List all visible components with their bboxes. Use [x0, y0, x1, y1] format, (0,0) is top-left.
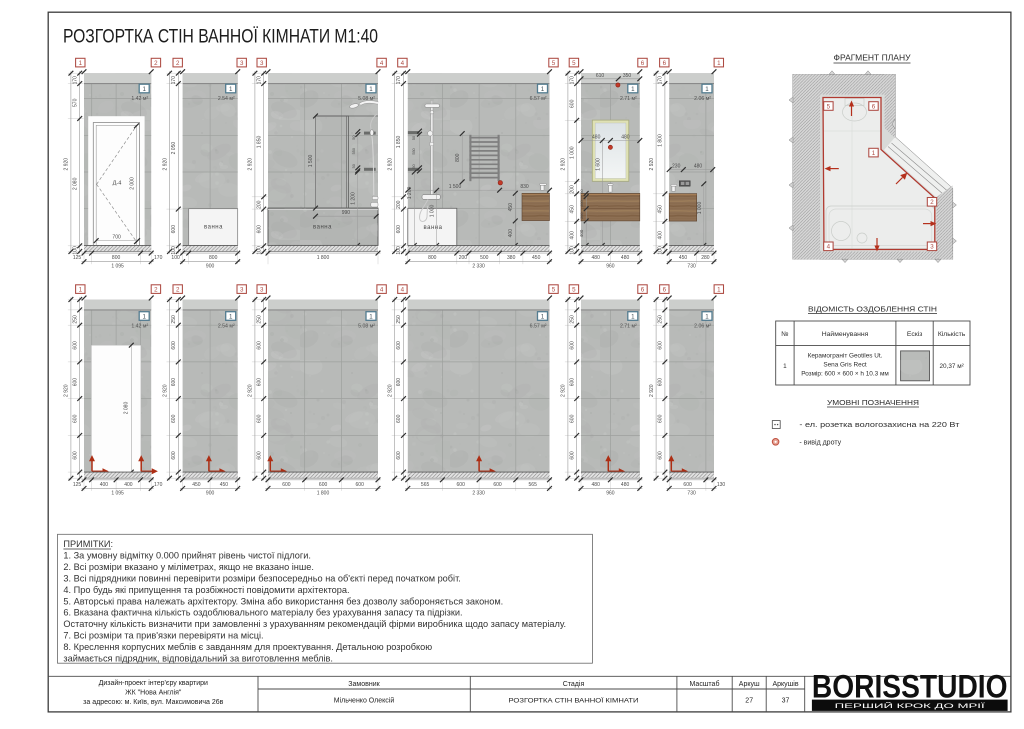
- svg-text:1 000: 1 000: [697, 202, 703, 215]
- svg-text:600: 600: [256, 451, 262, 460]
- svg-text:6.57 м²: 6.57 м²: [530, 96, 547, 102]
- svg-text:2 330: 2 330: [472, 490, 485, 496]
- svg-text:1 500: 1 500: [308, 155, 314, 168]
- svg-text:200: 200: [256, 200, 262, 209]
- svg-text:27: 27: [745, 697, 753, 704]
- svg-text:2 920: 2 920: [388, 384, 394, 397]
- svg-text:450: 450: [192, 482, 201, 488]
- svg-text:2 050: 2 050: [171, 142, 177, 155]
- svg-text:3: 3: [930, 244, 934, 251]
- svg-text:4: 4: [827, 244, 831, 251]
- svg-text:2 330: 2 330: [472, 264, 485, 270]
- svg-text:600: 600: [72, 378, 78, 387]
- svg-text:170: 170: [72, 76, 78, 85]
- svg-text:600: 600: [171, 225, 177, 234]
- svg-text:ВІДОМІСТЬ ОЗДОБЛЕННЯ СТІН: ВІДОМІСТЬ ОЗДОБЛЕННЯ СТІН: [808, 305, 937, 314]
- svg-text:1: 1: [79, 286, 83, 293]
- svg-text:570: 570: [72, 98, 78, 107]
- svg-text:7. Всі розміри та прив'язки пе: 7. Всі розміри та прив'язки перевіряти н…: [63, 631, 263, 641]
- svg-text:1.42 м²: 1.42 м²: [131, 96, 148, 102]
- svg-text:Кількість: Кількість: [938, 330, 966, 338]
- svg-text:800: 800: [428, 255, 437, 261]
- svg-text:4: 4: [380, 286, 384, 293]
- svg-text:480: 480: [621, 255, 630, 261]
- svg-text:ванна: ванна: [204, 225, 223, 231]
- svg-text:450: 450: [508, 203, 514, 212]
- svg-text:6.57 м²: 6.57 м²: [530, 323, 547, 329]
- svg-text:Розмір: 600 × 600 × h 10.3 мм: Розмір: 600 × 600 × h 10.3 мм: [801, 370, 889, 378]
- svg-text:5: 5: [572, 60, 576, 67]
- svg-text:400: 400: [508, 229, 514, 238]
- svg-text:550: 550: [352, 148, 356, 154]
- svg-text:2 920: 2 920: [649, 384, 655, 397]
- svg-text:за адресою: м. Київ, вул. Макс: за адресою: м. Київ, вул. Максимовича 26…: [83, 699, 224, 706]
- svg-text:1 095: 1 095: [111, 490, 124, 496]
- svg-text:1: 1: [369, 86, 373, 93]
- svg-text:Дизайн-проект інтер'єру кварти: Дизайн-проект інтер'єру квартири: [99, 679, 208, 687]
- svg-text:4: 4: [401, 286, 405, 293]
- svg-text:960: 960: [606, 264, 615, 270]
- svg-text:2 080: 2 080: [124, 402, 130, 415]
- svg-text:2.06 м²: 2.06 м²: [694, 96, 711, 102]
- svg-text:2 920: 2 920: [248, 158, 254, 171]
- svg-text:250: 250: [256, 315, 262, 324]
- svg-text:500: 500: [480, 255, 489, 261]
- svg-text:50: 50: [580, 189, 584, 193]
- svg-text:1 000: 1 000: [430, 205, 436, 218]
- svg-text:2 920: 2 920: [64, 384, 70, 397]
- svg-text:600: 600: [256, 414, 262, 423]
- svg-text:2 920: 2 920: [388, 158, 394, 171]
- svg-text:2 920: 2 920: [561, 158, 567, 171]
- svg-text:600: 600: [569, 378, 575, 387]
- svg-text:600: 600: [72, 341, 78, 350]
- svg-text:1: 1: [79, 60, 83, 67]
- svg-text:480: 480: [592, 482, 601, 488]
- svg-text:8. Креслення корпусних меблів: 8. Креслення корпусних меблів є завдання…: [63, 642, 432, 652]
- svg-text:50: 50: [412, 164, 416, 168]
- svg-text:600: 600: [256, 341, 262, 350]
- svg-text:4. Про будь які припущення та: 4. Про будь які припущення та розбіжност…: [63, 585, 349, 595]
- svg-text:РОЗГОРТКА СТІН ВАННОЇ КІМНАТИ: РОЗГОРТКА СТІН ВАННОЇ КІМНАТИ: [509, 696, 639, 704]
- svg-text:ПЕРШИЙ КРОК ДО МРІЇ: ПЕРШИЙ КРОК ДО МРІЇ: [835, 702, 986, 710]
- svg-text:1: 1: [717, 60, 721, 67]
- svg-text:2: 2: [176, 60, 180, 67]
- svg-text:20,37 м²: 20,37 м²: [939, 363, 963, 370]
- svg-text:480: 480: [621, 482, 630, 488]
- svg-text:Аркушів: Аркушів: [772, 680, 798, 688]
- svg-text:5.08 м²: 5.08 м²: [358, 323, 375, 329]
- svg-text:2 920: 2 920: [561, 384, 567, 397]
- svg-text:ПРИМІТКИ:: ПРИМІТКИ:: [63, 539, 113, 549]
- svg-text:1: 1: [705, 86, 709, 93]
- svg-text:займається підрядник, відповід: займається підрядник, відповідальний за …: [63, 654, 333, 664]
- svg-text:400: 400: [124, 482, 133, 488]
- svg-text:1 800: 1 800: [317, 255, 330, 261]
- svg-text:1.42 м²: 1.42 м²: [131, 323, 148, 329]
- svg-text:1. За умовну відмітку 0.000 пр: 1. За умовну відмітку 0.000 прийнят ріве…: [63, 551, 311, 561]
- svg-text:600: 600: [569, 341, 575, 350]
- svg-text:550: 550: [412, 148, 416, 154]
- svg-text:900: 900: [206, 490, 215, 496]
- svg-text:2 920: 2 920: [162, 158, 168, 171]
- svg-text:Ескіз: Ескіз: [907, 330, 922, 338]
- svg-text:600: 600: [396, 414, 402, 423]
- svg-text:1 000: 1 000: [569, 146, 575, 159]
- svg-text:565: 565: [529, 482, 538, 488]
- svg-text:Керамограніт Geotiles Ut.: Керамограніт Geotiles Ut.: [808, 352, 883, 360]
- svg-text:РОЗГОРТКА СТІН ВАННОЇ КІМНАТИ: РОЗГОРТКА СТІН ВАННОЇ КІМНАТИ М1:40: [63, 27, 378, 48]
- svg-text:600: 600: [658, 341, 664, 350]
- svg-text:50: 50: [352, 135, 356, 139]
- svg-text:100: 100: [171, 246, 177, 255]
- svg-text:Аркуш: Аркуш: [739, 681, 760, 688]
- svg-text:600: 600: [569, 451, 575, 460]
- svg-text:100: 100: [658, 246, 664, 255]
- svg-text:600: 600: [683, 482, 692, 488]
- svg-text:6: 6: [641, 60, 645, 67]
- svg-text:480: 480: [694, 163, 703, 169]
- svg-text:1: 1: [717, 286, 721, 293]
- svg-text:600: 600: [72, 414, 78, 423]
- svg-text:450: 450: [569, 205, 575, 214]
- svg-text:2: 2: [930, 199, 934, 206]
- svg-text:2 920: 2 920: [649, 158, 655, 171]
- svg-text:1: 1: [631, 313, 635, 320]
- svg-text:50: 50: [412, 136, 416, 140]
- svg-text:1: 1: [783, 363, 787, 370]
- svg-text:600: 600: [396, 378, 402, 387]
- svg-text:600: 600: [396, 341, 402, 350]
- svg-text:Замовник: Замовник: [348, 681, 380, 688]
- svg-text:450: 450: [220, 482, 229, 488]
- svg-text:100: 100: [171, 255, 180, 261]
- svg-text:600: 600: [569, 99, 575, 108]
- svg-text:170: 170: [658, 76, 664, 85]
- svg-text:830: 830: [520, 184, 529, 190]
- svg-text:600: 600: [256, 225, 262, 234]
- svg-text:100: 100: [256, 246, 262, 255]
- svg-text:200: 200: [580, 213, 584, 219]
- svg-text:600: 600: [396, 225, 402, 234]
- svg-text:600: 600: [72, 451, 78, 460]
- svg-text:Масштаб: Масштаб: [690, 680, 720, 688]
- svg-text:600: 600: [356, 482, 365, 488]
- svg-text:200: 200: [396, 200, 402, 209]
- svg-text:600: 600: [569, 414, 575, 423]
- svg-text:Sena Gris Rect: Sena Gris Rect: [823, 362, 867, 369]
- svg-text:1: 1: [229, 313, 233, 320]
- svg-text:1: 1: [229, 86, 233, 93]
- svg-text:250: 250: [658, 315, 664, 324]
- svg-text:400: 400: [658, 231, 664, 240]
- svg-text:Д-4: Д-4: [113, 181, 122, 187]
- svg-text:400: 400: [569, 231, 575, 240]
- svg-text:600: 600: [256, 378, 262, 387]
- svg-text:2 920: 2 920: [248, 384, 254, 397]
- svg-text:ванна: ванна: [424, 225, 443, 231]
- svg-text:600: 600: [396, 451, 402, 460]
- svg-text:50: 50: [352, 164, 356, 168]
- svg-text:1 800: 1 800: [317, 490, 330, 496]
- svg-text:2.54 м²: 2.54 м²: [218, 323, 235, 329]
- svg-text:170: 170: [396, 76, 402, 85]
- svg-text:200: 200: [459, 255, 468, 261]
- svg-text:990: 990: [342, 210, 351, 216]
- svg-text:2: 2: [176, 286, 180, 293]
- svg-text:5.08 м²: 5.08 м²: [358, 96, 375, 102]
- svg-text:1: 1: [541, 313, 545, 320]
- svg-text:130: 130: [717, 482, 726, 488]
- svg-text:3: 3: [240, 60, 244, 67]
- svg-text:600: 600: [658, 451, 664, 460]
- svg-text:УМОВНІ ПОЗНАЧЕННЯ: УМОВНІ ПОЗНАЧЕННЯ: [827, 398, 919, 407]
- svg-text:6: 6: [641, 286, 645, 293]
- svg-text:1: 1: [631, 86, 635, 93]
- svg-text:600: 600: [171, 341, 177, 350]
- svg-text:280: 280: [701, 255, 710, 261]
- svg-text:170: 170: [256, 76, 262, 85]
- svg-text:1 850: 1 850: [256, 136, 262, 149]
- svg-text:3: 3: [260, 60, 264, 67]
- svg-text:600: 600: [658, 414, 664, 423]
- svg-text:Мільченко Олексій: Мільченко Олексій: [334, 696, 395, 704]
- svg-text:900: 900: [206, 264, 215, 270]
- svg-text:5: 5: [572, 286, 576, 293]
- svg-text:2 920: 2 920: [64, 158, 70, 171]
- svg-text:170: 170: [569, 76, 575, 85]
- svg-text:450: 450: [532, 255, 541, 261]
- svg-text:5: 5: [552, 60, 556, 67]
- svg-text:600: 600: [493, 482, 502, 488]
- svg-text:250: 250: [569, 315, 575, 324]
- svg-text:170: 170: [171, 76, 177, 85]
- svg-text:1: 1: [142, 86, 146, 93]
- svg-text:5: 5: [552, 286, 556, 293]
- svg-text:2. Всі розміри вказано у мілім: 2. Всі розміри вказано у міліметрах, якщ…: [63, 562, 314, 572]
- svg-text:2 000: 2 000: [129, 177, 135, 190]
- svg-text:600: 600: [319, 482, 328, 488]
- svg-text:- ел. розетка вологозахисна на: - ел. розетка вологозахисна на 220 Вт: [799, 422, 960, 429]
- svg-text:5: 5: [827, 103, 831, 110]
- svg-text:3: 3: [240, 286, 244, 293]
- svg-text:700: 700: [112, 235, 121, 241]
- svg-text:1: 1: [872, 150, 876, 157]
- svg-text:1 095: 1 095: [111, 264, 124, 270]
- svg-text:6. Вказана фактична кількість: 6. Вказана фактична кількість оздоблювал…: [63, 608, 462, 618]
- svg-text:6: 6: [872, 103, 876, 110]
- svg-text:600: 600: [658, 378, 664, 387]
- svg-text:600: 600: [171, 451, 177, 460]
- svg-text:ванна: ванна: [313, 225, 332, 231]
- svg-text:170: 170: [154, 255, 163, 261]
- svg-text:1 500: 1 500: [449, 184, 462, 190]
- svg-text:2.71 м²: 2.71 м²: [620, 96, 637, 102]
- svg-text:565: 565: [421, 482, 430, 488]
- svg-text:250: 250: [72, 315, 78, 324]
- svg-text:380: 380: [507, 255, 516, 261]
- svg-text:610: 610: [596, 73, 605, 79]
- svg-text:200: 200: [580, 200, 584, 206]
- svg-text:450: 450: [658, 205, 664, 214]
- svg-text:1 850: 1 850: [396, 136, 402, 149]
- svg-text:1 800: 1 800: [658, 134, 664, 147]
- svg-text:600: 600: [171, 378, 177, 387]
- svg-text:1 600: 1 600: [595, 158, 601, 171]
- svg-text:2 920: 2 920: [162, 384, 168, 397]
- svg-text:800: 800: [455, 153, 461, 162]
- svg-text:100: 100: [72, 246, 78, 255]
- svg-text:1: 1: [142, 313, 146, 320]
- svg-text:100: 100: [569, 246, 575, 255]
- svg-text:480: 480: [592, 134, 601, 140]
- svg-text:600: 600: [457, 482, 466, 488]
- svg-text:125: 125: [73, 482, 82, 488]
- svg-text:Найменування: Найменування: [822, 330, 869, 338]
- svg-text:Остаточну кількість визначити: Остаточну кількість визначити при замовл…: [63, 619, 566, 629]
- svg-text:1 200: 1 200: [407, 187, 413, 200]
- svg-text:37: 37: [782, 697, 790, 704]
- svg-text:Стадія: Стадія: [563, 680, 585, 688]
- svg-text:5. Авторські права належать ар: 5. Авторські права належать архітектору.…: [63, 596, 503, 606]
- svg-text:730: 730: [687, 264, 696, 270]
- svg-text:600: 600: [171, 414, 177, 423]
- svg-text:2.06 м²: 2.06 м²: [694, 323, 711, 329]
- svg-text:400: 400: [579, 229, 584, 237]
- svg-text:1: 1: [541, 86, 545, 93]
- svg-text:800: 800: [112, 255, 121, 261]
- svg-text:2.71 м²: 2.71 м²: [620, 323, 637, 329]
- svg-text:1: 1: [369, 313, 373, 320]
- svg-text:125: 125: [73, 255, 82, 261]
- svg-text:ЖК "Нова Англія": ЖК "Нова Англія": [125, 688, 182, 696]
- svg-text:1: 1: [705, 313, 709, 320]
- svg-text:480: 480: [621, 134, 630, 140]
- svg-text:230: 230: [672, 163, 681, 169]
- svg-text:450: 450: [679, 255, 688, 261]
- svg-text:BORISSTUDIO: BORISSTUDIO: [812, 668, 1008, 704]
- svg-text:250: 250: [396, 315, 402, 324]
- svg-text:730: 730: [687, 490, 696, 496]
- svg-text:3: 3: [260, 286, 264, 293]
- svg-text:250: 250: [171, 315, 177, 324]
- svg-text:2: 2: [154, 286, 158, 293]
- svg-text:3. Всі підрядники повинні пере: 3. Всі підрядники повинні перевірити роз…: [63, 573, 460, 583]
- svg-text:4: 4: [380, 60, 384, 67]
- svg-text:100: 100: [396, 246, 402, 255]
- svg-text:2.54 м²: 2.54 м²: [218, 96, 235, 102]
- svg-text:800: 800: [209, 255, 218, 261]
- svg-text:6: 6: [663, 60, 667, 67]
- svg-text:400: 400: [100, 482, 109, 488]
- svg-text:- вивід дроту: - вивід дроту: [799, 438, 841, 446]
- svg-text:480: 480: [592, 255, 601, 261]
- svg-text:№: №: [781, 331, 788, 338]
- svg-text:2 080: 2 080: [72, 177, 78, 190]
- svg-text:960: 960: [606, 490, 615, 496]
- svg-text:2: 2: [154, 60, 158, 67]
- svg-text:1 200: 1 200: [351, 192, 357, 205]
- svg-text:170: 170: [154, 482, 163, 488]
- svg-text:ФРАГМЕНТ ПЛАНУ: ФРАГМЕНТ ПЛАНУ: [834, 54, 911, 63]
- svg-text:6: 6: [663, 286, 667, 293]
- svg-text:200: 200: [569, 185, 575, 194]
- svg-text:600: 600: [282, 482, 291, 488]
- svg-text:350: 350: [623, 73, 632, 79]
- svg-text:4: 4: [401, 60, 405, 67]
